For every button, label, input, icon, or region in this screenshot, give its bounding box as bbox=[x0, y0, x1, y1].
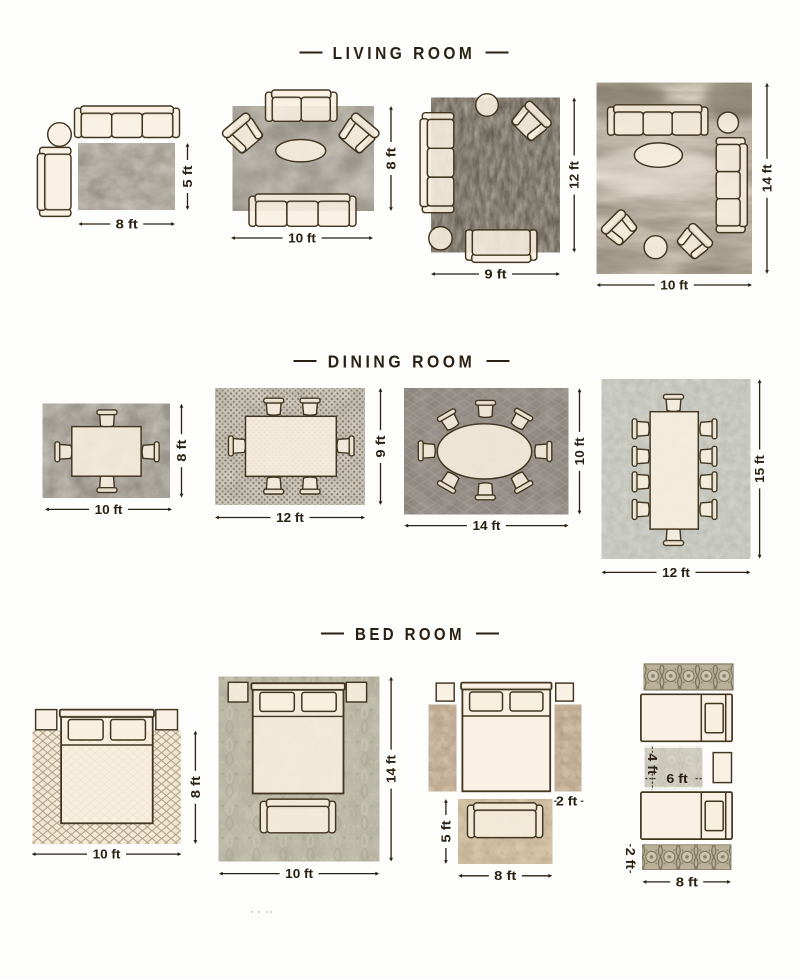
svg-text:8 ft: 8 ft bbox=[189, 776, 203, 798]
svg-text:LIVING ROOM: LIVING ROOM bbox=[333, 43, 476, 63]
svg-text:8 ft: 8 ft bbox=[676, 875, 698, 889]
svg-text:8 ft: 8 ft bbox=[116, 217, 138, 231]
svg-text:5 ft: 5 ft bbox=[181, 165, 195, 187]
svg-text:8 ft: 8 ft bbox=[494, 869, 516, 883]
svg-text:10 ft: 10 ft bbox=[285, 867, 313, 881]
svg-text:10 ft: 10 ft bbox=[93, 848, 121, 862]
svg-text:12 ft: 12 ft bbox=[568, 161, 582, 189]
svg-text:10 ft: 10 ft bbox=[288, 231, 316, 245]
svg-text:4 ft: 4 ft bbox=[645, 753, 659, 774]
svg-text:DINING ROOM: DINING ROOM bbox=[328, 352, 476, 372]
svg-text:10 ft: 10 ft bbox=[660, 278, 688, 292]
svg-text:BED ROOM: BED ROOM bbox=[355, 624, 465, 644]
svg-text:2 ft: 2 ft bbox=[556, 795, 577, 809]
svg-text:14 ft: 14 ft bbox=[760, 164, 774, 192]
svg-text:5 ft: 5 ft bbox=[439, 820, 453, 842]
svg-text:10 ft: 10 ft bbox=[95, 503, 123, 517]
svg-text:14 ft: 14 ft bbox=[472, 519, 500, 533]
svg-text:14 ft: 14 ft bbox=[385, 755, 399, 783]
svg-text:8 ft: 8 ft bbox=[384, 147, 398, 169]
svg-text:10 ft: 10 ft bbox=[573, 437, 587, 465]
svg-text:9 ft: 9 ft bbox=[374, 435, 388, 457]
svg-text:2 ft: 2 ft bbox=[623, 848, 637, 869]
svg-text:8 ft: 8 ft bbox=[175, 440, 189, 462]
svg-text:6 ft: 6 ft bbox=[666, 772, 687, 786]
svg-text:12 ft: 12 ft bbox=[662, 566, 690, 580]
svg-text:15 ft: 15 ft bbox=[753, 455, 767, 483]
svg-text:12 ft: 12 ft bbox=[276, 511, 304, 525]
svg-text:9 ft: 9 ft bbox=[484, 267, 506, 281]
